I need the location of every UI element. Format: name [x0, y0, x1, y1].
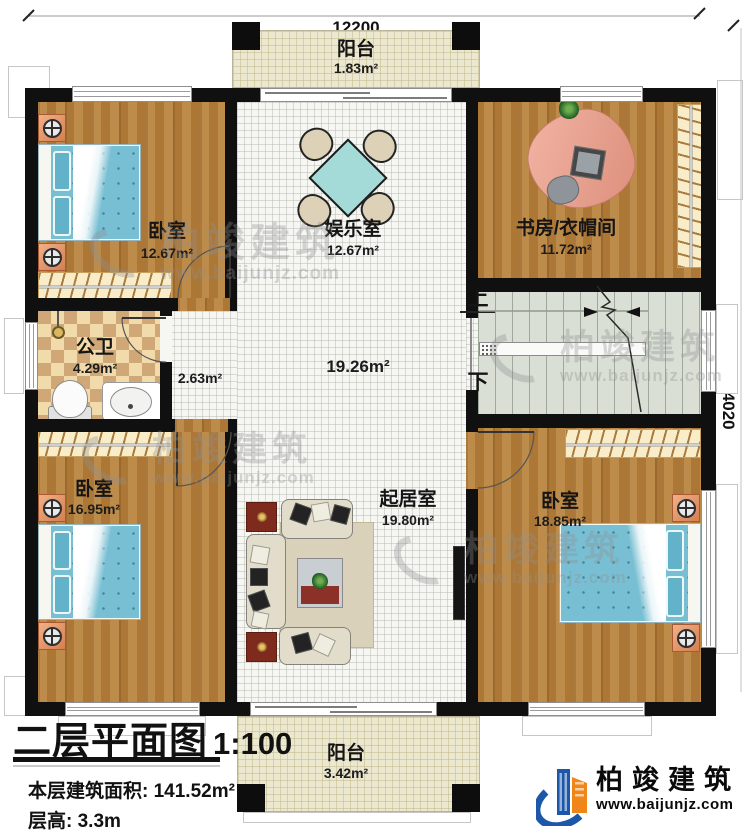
room-label: 阳台 — [337, 40, 375, 59]
pillow — [53, 151, 71, 191]
wall-bedroom3-right — [225, 419, 237, 702]
door-threshold — [175, 419, 228, 432]
pillow — [666, 530, 684, 571]
nightstand — [38, 114, 66, 142]
room-area: 19.26m² — [326, 358, 389, 375]
wardrobe — [677, 104, 702, 268]
balcony-sill — [243, 812, 471, 823]
wardrobe — [38, 430, 172, 457]
window — [701, 490, 716, 648]
wall-study-left — [466, 95, 478, 292]
window-sill — [522, 716, 652, 736]
stair-down-label: 下 — [468, 372, 489, 393]
nightstand — [38, 243, 66, 271]
room-area: 4.29m² — [73, 361, 117, 375]
wall-left — [25, 88, 38, 716]
tv — [453, 546, 465, 620]
floor-area-row: 本层建筑面积: 141.52m² — [28, 776, 235, 803]
cushion — [251, 611, 270, 630]
blanket-fold — [73, 146, 128, 239]
blanket-fold — [73, 526, 128, 618]
bed — [559, 523, 701, 623]
floor-height-value: 3.3m — [78, 811, 121, 832]
brand-logo-icon — [536, 764, 590, 826]
door-threshold — [466, 432, 478, 489]
cushion — [250, 545, 271, 566]
window — [528, 702, 645, 716]
side-table — [246, 632, 277, 662]
wall-bedroom1-right — [225, 95, 237, 305]
floor-area-label: 本层建筑面积: — [28, 781, 148, 802]
room-label: 卧室 — [541, 492, 579, 511]
stair-up-underline — [460, 311, 495, 313]
ceiling-lamp-icon — [52, 326, 65, 339]
column — [237, 784, 265, 812]
title-underline-thin — [13, 765, 220, 767]
window-sill — [716, 304, 738, 394]
computer-monitor — [570, 146, 606, 181]
potted-plant — [559, 99, 579, 119]
room-label: 阳台 — [327, 744, 365, 763]
room-label: 起居室 — [379, 490, 436, 509]
wall-stairs-bottom — [466, 414, 716, 428]
pillow — [53, 196, 71, 236]
wardrobe — [565, 429, 701, 458]
floor-plan: 12200 14020 — [0, 0, 750, 837]
brand-url: www.baijunjz.com — [596, 796, 740, 814]
floor-height-row: 层高: 3.3m — [28, 806, 121, 833]
brand-logo: 柏竣建筑 www.baijunjz.com — [536, 764, 740, 826]
faucet — [128, 404, 133, 409]
window — [72, 86, 192, 102]
room-label: 卧室 — [75, 480, 113, 499]
stair-railing — [479, 342, 646, 356]
nightstand — [38, 494, 66, 522]
room-area: 12.67m² — [141, 246, 193, 260]
room-label: 书房/衣帽间 — [516, 219, 616, 238]
column — [232, 22, 260, 50]
door-threshold — [178, 298, 230, 311]
room-area: 19.80m² — [382, 513, 434, 527]
room-area: 1.83m² — [334, 61, 378, 75]
window — [25, 322, 38, 390]
wall-study-bottom — [466, 278, 716, 292]
bed — [38, 144, 141, 241]
room-label: 公卫 — [76, 338, 114, 357]
wardrobe — [38, 272, 172, 299]
pillow — [53, 531, 71, 570]
stair-newel-dots — [481, 344, 496, 355]
column — [452, 784, 480, 812]
blanket-fold — [611, 525, 666, 621]
nightstand — [672, 624, 700, 652]
bed — [38, 524, 141, 620]
dimension-tick — [23, 10, 34, 21]
coffee-table — [297, 558, 343, 608]
nightstand — [672, 494, 700, 522]
brand-name: 柏竣建筑 — [596, 764, 740, 796]
sliding-door — [260, 88, 452, 102]
window-sill — [716, 484, 738, 654]
sink-basin — [110, 387, 152, 417]
side-table — [246, 502, 277, 532]
room-area: 3.42m² — [324, 766, 368, 780]
plan-scale: 1:100 — [213, 726, 292, 762]
floor-area-value: 141.52m² — [154, 781, 235, 802]
dimension-tick — [728, 20, 739, 31]
window-sill — [717, 80, 743, 200]
cushion — [250, 568, 268, 586]
window — [560, 86, 643, 102]
room-area: 2.63m² — [178, 371, 222, 385]
table-plant — [312, 573, 328, 589]
stair-up-label: 上 — [468, 288, 489, 309]
pillow — [666, 576, 684, 617]
toilet — [52, 380, 88, 418]
room-area: 12.67m² — [327, 243, 379, 257]
dimension-tick — [694, 8, 705, 19]
window-sill — [4, 318, 24, 394]
cushion — [311, 502, 332, 523]
room-area: 16.95m² — [68, 502, 120, 516]
title-underline — [13, 757, 220, 762]
room-area: 11.72m² — [540, 242, 591, 256]
room-area: 18.85m² — [534, 514, 586, 528]
pillow — [53, 575, 71, 614]
room-label: 娱乐室 — [324, 220, 381, 239]
floor-height-label: 层高: — [28, 811, 72, 832]
door-threshold — [160, 316, 172, 362]
column — [452, 22, 480, 50]
room-label: 卧室 — [148, 222, 186, 241]
window — [701, 310, 716, 392]
nightstand — [38, 622, 66, 650]
